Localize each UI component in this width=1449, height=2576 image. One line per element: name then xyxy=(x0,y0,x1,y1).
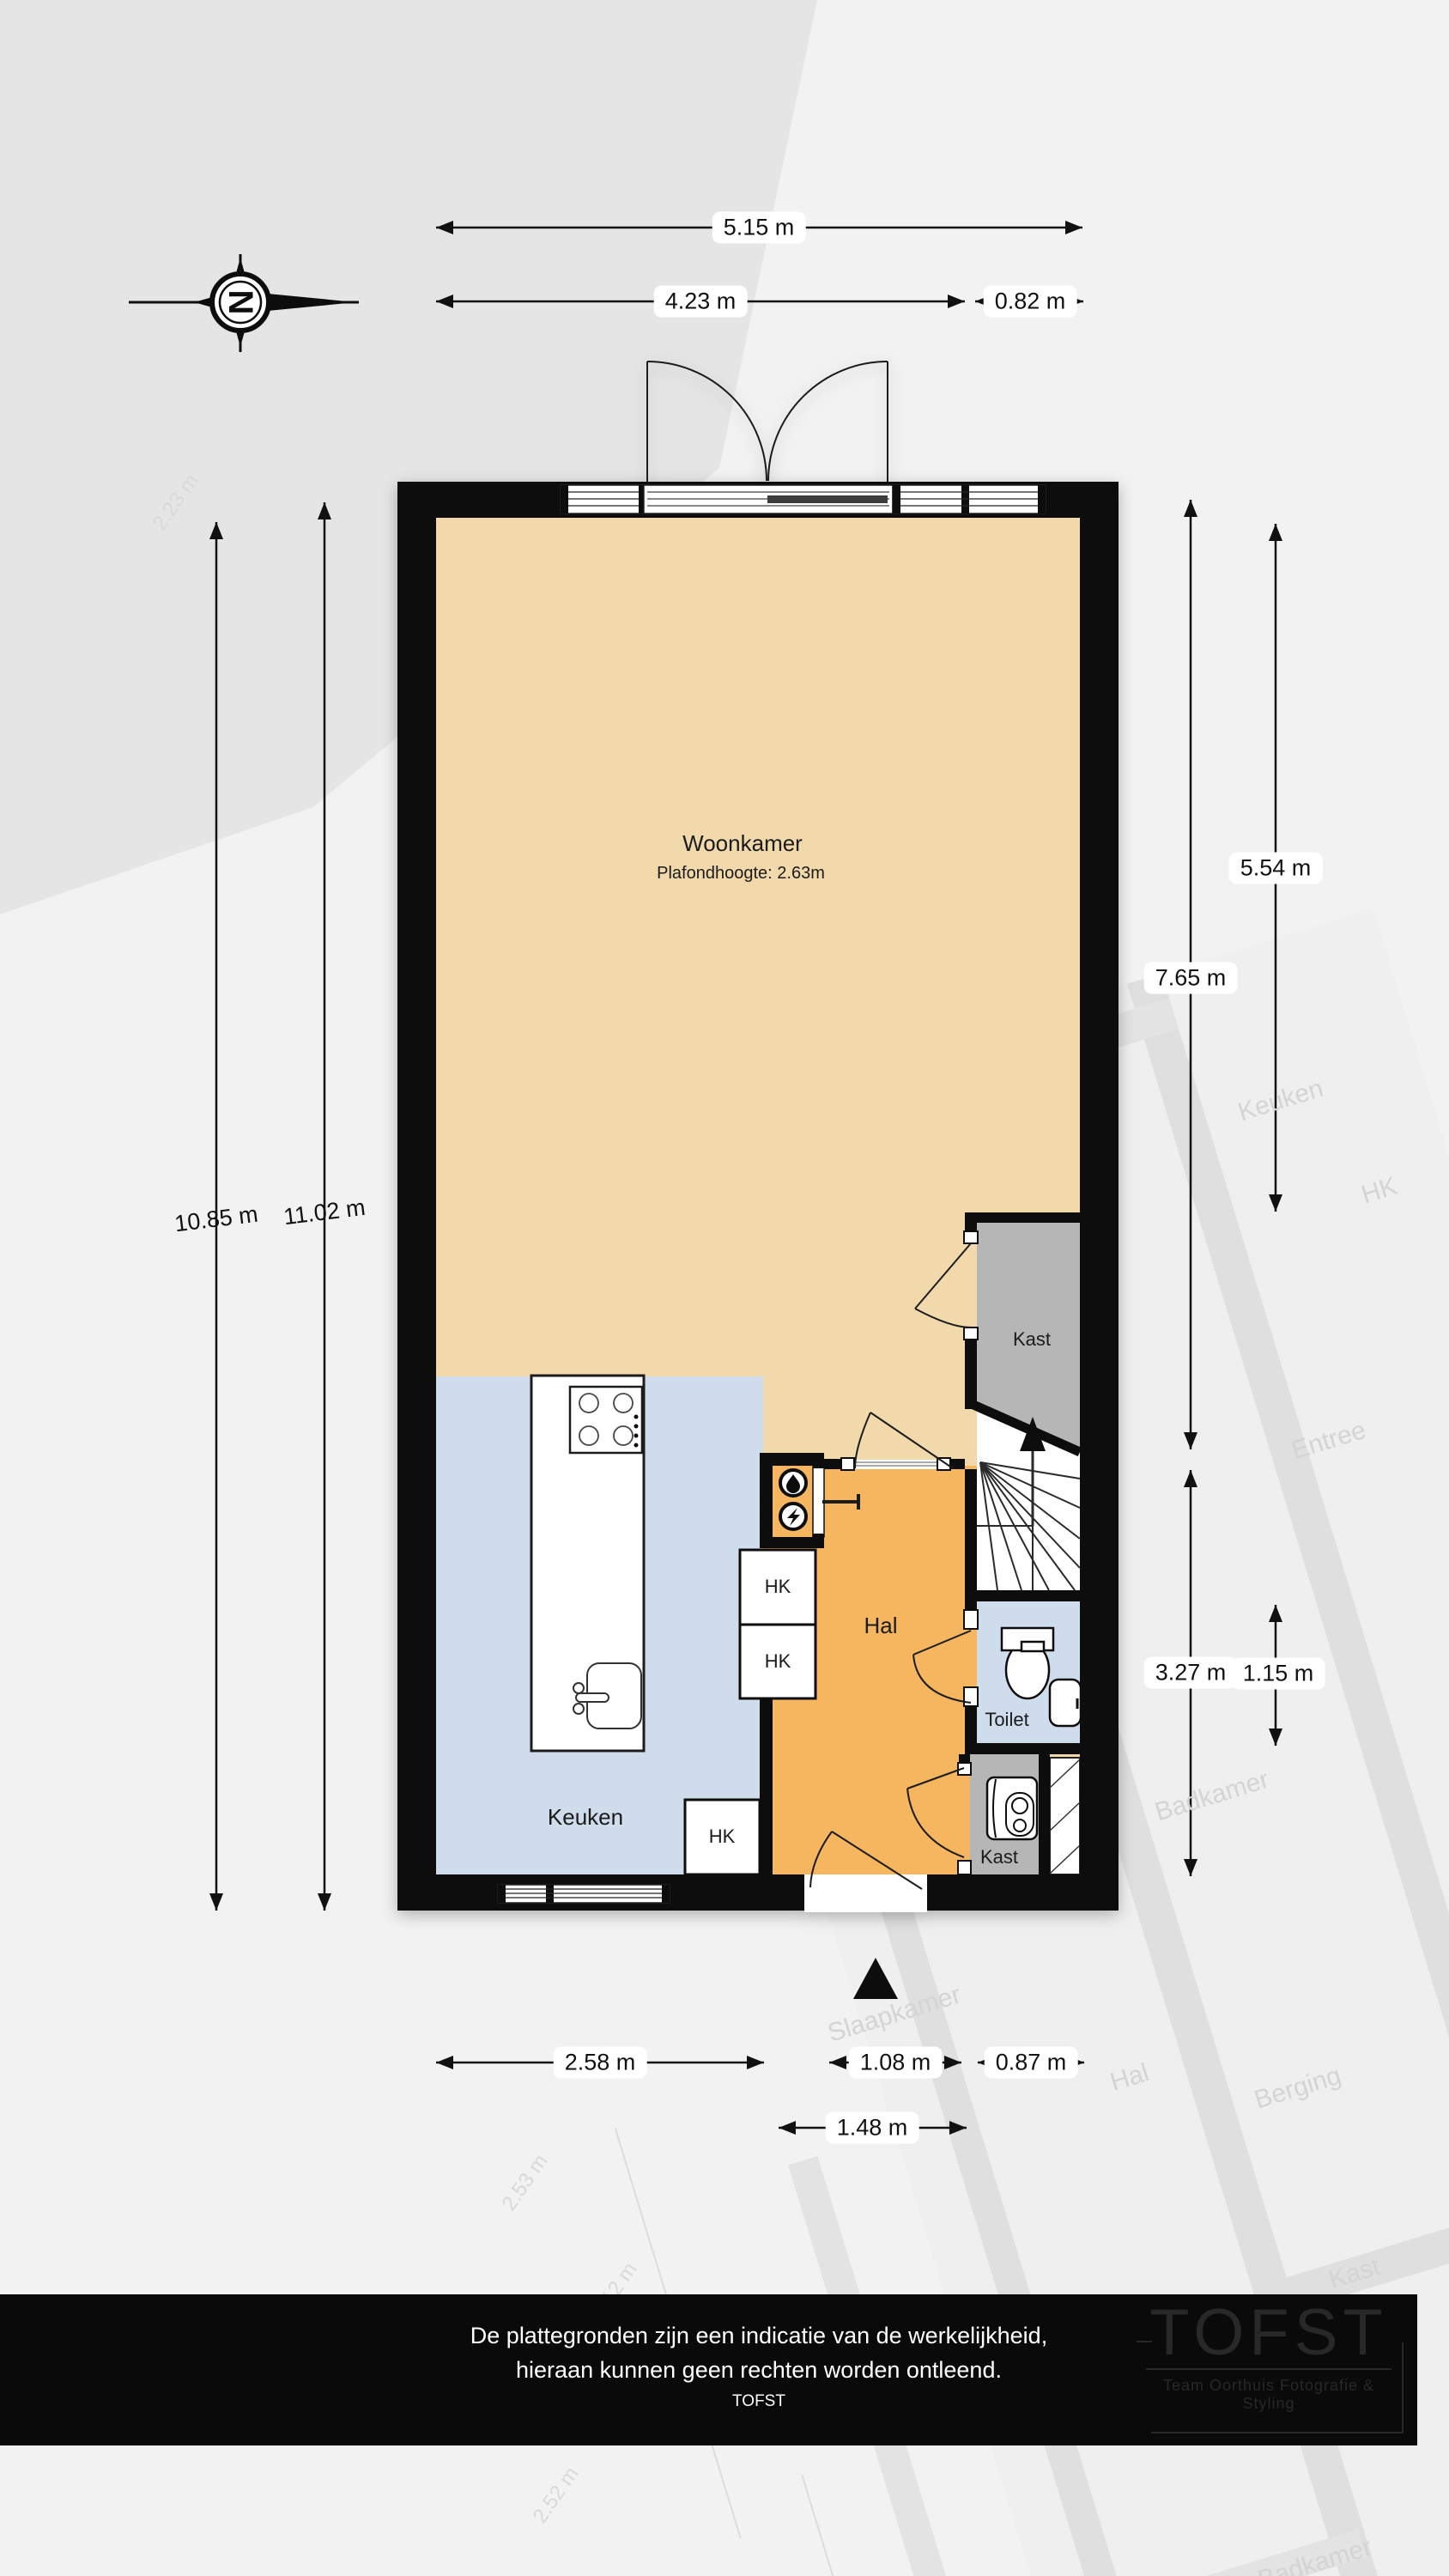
dim-top-total: 5.15 m xyxy=(712,212,806,244)
disclaimer-line-3: TOFST xyxy=(390,2391,1128,2413)
dim-bottom-door: 1.08 m xyxy=(849,2047,943,2079)
floorplan-page: N xyxy=(0,0,1449,2576)
tofst-logo-frame-tick xyxy=(1137,2341,1152,2342)
dim-top-left: 4.23 m xyxy=(654,286,748,318)
dim-top-right: 0.82 m xyxy=(984,286,1077,318)
label-hal: Hal xyxy=(864,1614,897,1637)
label-hk-3: HK xyxy=(709,1827,736,1846)
label-plafondhoogte: Plafondhoogte: 2.63m xyxy=(657,865,825,882)
dim-right-bottom-outer: 3.27 m xyxy=(1144,1657,1238,1689)
washing-machine-icon xyxy=(987,1777,1037,1839)
window-bottom xyxy=(498,1885,670,1903)
stove-icon xyxy=(570,1387,642,1453)
dim-right-bottom-inner: 1.15 m xyxy=(1232,1658,1325,1690)
label-keuken: Keuken xyxy=(548,1806,623,1828)
label-hk-1: HK xyxy=(765,1577,791,1596)
dim-bottom-keuken: 2.58 m xyxy=(554,2047,647,2079)
dim-right-top-inner: 5.54 m xyxy=(1229,853,1323,884)
tofst-logo-frame xyxy=(1151,2342,1404,2433)
kitchen-island xyxy=(531,1376,644,1751)
window-top-left xyxy=(561,485,646,513)
label-hk-2: HK xyxy=(765,1652,791,1671)
label-woonkamer: Woonkamer xyxy=(682,832,803,854)
footer-disclaimer-text: De plattegronden zijn een indicatie van … xyxy=(390,2318,1128,2413)
label-kast-lower: Kast xyxy=(980,1848,1018,1867)
floorplan-drawing: N xyxy=(0,0,1449,2576)
dim-bottom-hal: 1.48 m xyxy=(826,2112,919,2144)
building xyxy=(397,361,1119,1912)
dim-bottom-kast: 0.87 m xyxy=(985,2047,1078,2079)
toilet-sink-icon xyxy=(1050,1680,1081,1726)
disclaimer-line-2: hieraan kunnen geen rechten worden ontle… xyxy=(390,2353,1128,2387)
compass-letter: N xyxy=(221,290,259,315)
dim-right-top-outer: 7.65 m xyxy=(1144,963,1238,994)
french-door-threshold xyxy=(644,485,893,513)
label-toilet: Toilet xyxy=(985,1710,1028,1729)
window-top-right xyxy=(893,485,1046,513)
disclaimer-line-1: De plattegronden zijn een indicatie van … xyxy=(390,2318,1128,2353)
label-kast-upper: Kast xyxy=(1013,1330,1051,1349)
